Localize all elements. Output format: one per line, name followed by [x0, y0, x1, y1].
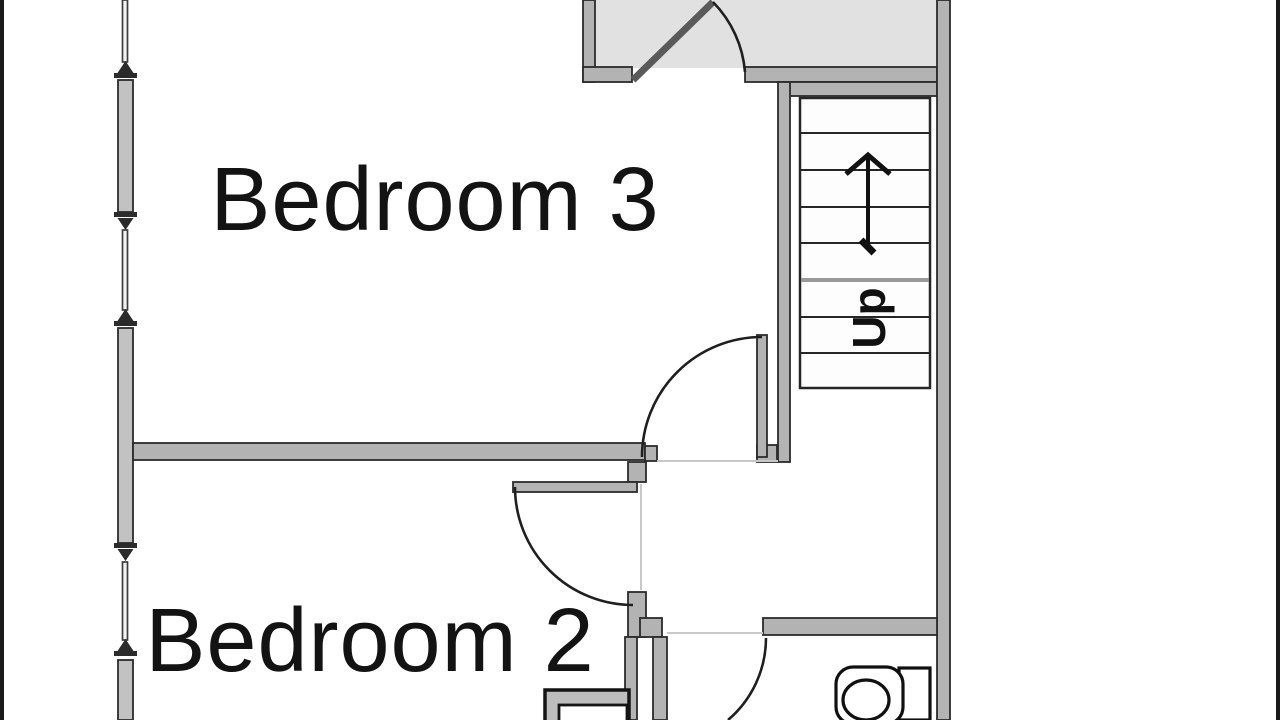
bedroom2-door	[513, 482, 637, 605]
stairs-up-label: Up	[843, 287, 895, 348]
cupboard	[545, 690, 629, 720]
bedroom2-label: Bedroom 2	[145, 591, 594, 691]
landing-room-floor	[595, 0, 937, 68]
floorplan-page: Up Bedroom 3 Bedroom 2	[0, 0, 1280, 720]
threshold-lines	[641, 461, 778, 633]
bedroom2-door-leaf	[513, 482, 637, 492]
stairwell-left-wall	[778, 82, 790, 462]
window-1	[118, 80, 133, 212]
window-3	[118, 660, 133, 720]
bedroom3-label: Bedroom 3	[210, 150, 659, 250]
right-edge-bar	[1276, 0, 1280, 720]
bedroom2-door-arc	[515, 487, 633, 605]
bedroom-divider-wall	[133, 443, 645, 460]
window-2	[118, 328, 133, 543]
bathroom-door-arc	[728, 638, 766, 720]
bathroom-corner-block	[640, 618, 662, 637]
left-edge-bar	[0, 0, 4, 720]
bedroom3-door	[642, 335, 767, 457]
stairwell-top-wall	[779, 82, 937, 96]
bedroom3-door-leaf	[757, 335, 767, 457]
staircase: Up	[800, 98, 930, 388]
bedroom2-door-jamb-top	[628, 462, 646, 482]
landing-bottom-wall-left	[583, 67, 632, 82]
landing-bottom-wall-right	[745, 67, 937, 82]
divider-wall-end-cap	[645, 446, 657, 461]
bathroom-left-wall	[653, 637, 667, 720]
hallway-bottom-wall	[763, 618, 937, 635]
toilet-bowl-inner	[843, 680, 889, 720]
cupboard-inner	[559, 705, 627, 720]
floorplan-image: Up Bedroom 3 Bedroom 2	[0, 0, 1280, 720]
toilet-icon	[836, 667, 930, 720]
right-exterior-wall	[937, 0, 950, 720]
bedroom3-door-arc	[642, 337, 762, 457]
